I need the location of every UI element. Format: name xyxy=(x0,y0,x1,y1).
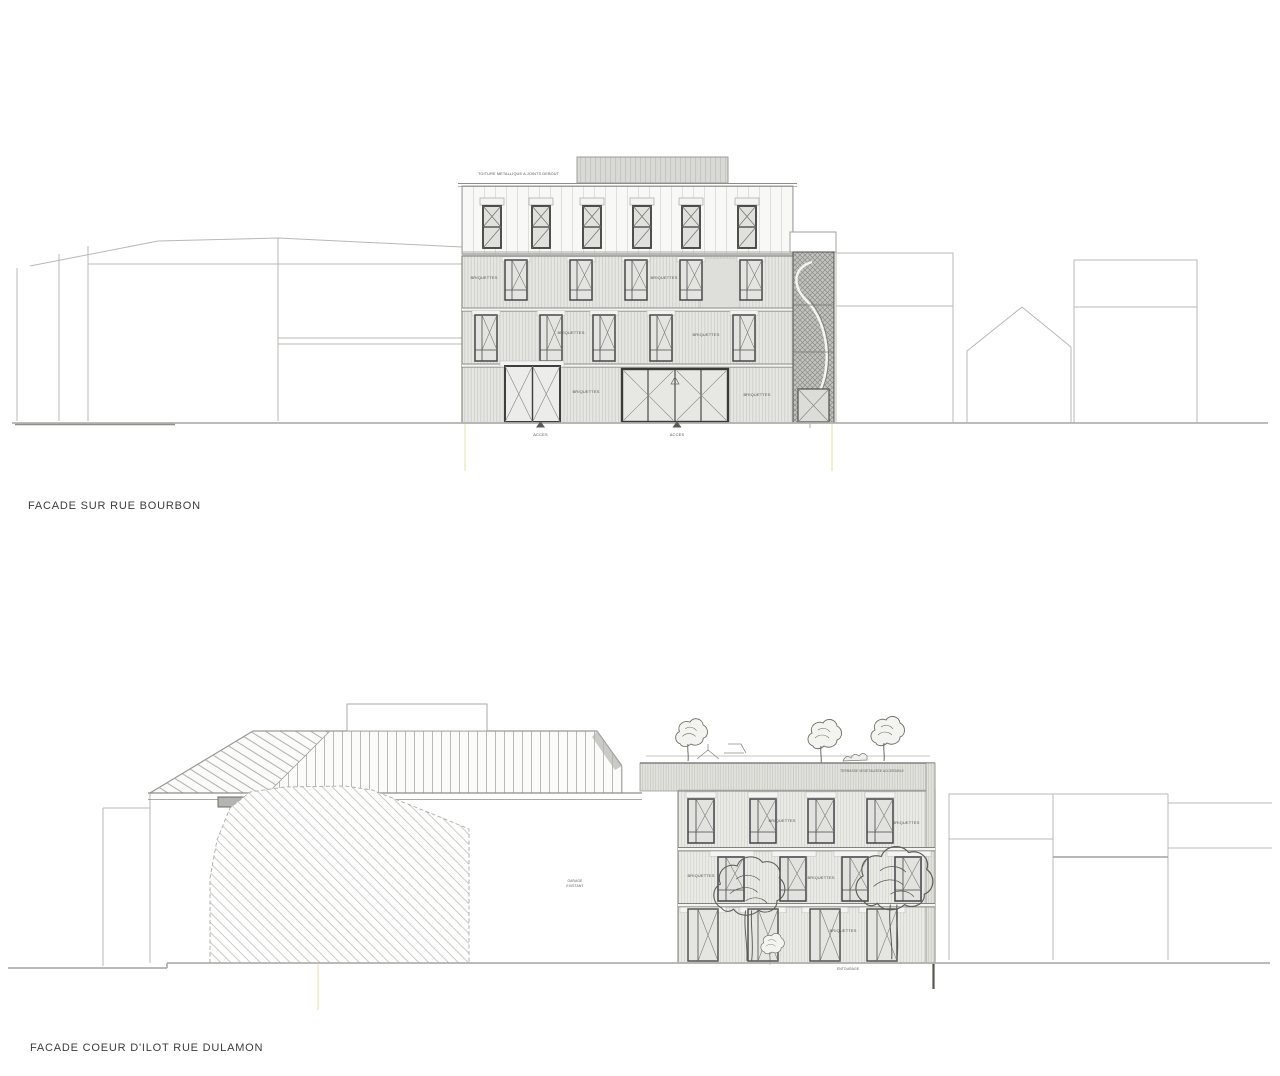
window xyxy=(580,198,604,248)
floor-band xyxy=(678,848,935,851)
material-label: BRIQUETTES xyxy=(768,818,795,823)
window xyxy=(718,857,744,901)
neighbor-buildings-bottom-right xyxy=(949,794,1272,960)
neighbor-roofline xyxy=(30,238,462,266)
window xyxy=(529,198,553,248)
window xyxy=(680,260,702,300)
window xyxy=(630,198,654,248)
tree xyxy=(871,716,905,761)
elevation-drawings: BRIQUETTES BRIQUETTES BRIQUETTES BRIQUET… xyxy=(0,0,1280,1076)
window-lintel xyxy=(865,792,895,798)
window xyxy=(867,909,897,961)
stair-door xyxy=(798,389,829,422)
neighbor-buildings-left xyxy=(15,238,462,424)
material-label: BRIQUETTES xyxy=(687,873,714,878)
material-label: BRIQUETTES xyxy=(892,820,919,825)
architectural-sheet: BRIQUETTES BRIQUETTES BRIQUETTES BRIQUET… xyxy=(0,0,1280,1076)
material-label: BRIQUETTES xyxy=(807,875,834,880)
wall-note-line: EXISTANT xyxy=(566,884,583,888)
left-low-wing xyxy=(103,793,150,966)
tree xyxy=(808,719,842,764)
terrace-shrub-sketch xyxy=(843,754,867,762)
existing-wall-hatched-blob xyxy=(210,786,469,963)
window xyxy=(540,315,562,361)
recessed-panel xyxy=(700,258,740,308)
window-lintel xyxy=(748,792,778,798)
main-building: BRIQUETTES BRIQUETTES BRIQUETTES BRIQUET… xyxy=(458,157,797,423)
property-limit-lines xyxy=(465,424,832,471)
window xyxy=(740,260,762,300)
terrace-parapet-band xyxy=(640,763,935,791)
terrace-note: TERRASSE VEGETALISEE ACCESSIBLE xyxy=(840,769,904,773)
entrance-glazing xyxy=(622,369,728,422)
wall-note: GARAGE EXISTANT xyxy=(566,879,583,888)
window xyxy=(625,260,647,300)
spiral-stair-tower xyxy=(790,232,836,423)
roof-main-section xyxy=(268,731,622,793)
window-lintel xyxy=(686,792,716,798)
facade-coeur-ilot-drawing: GARAGE EXISTANT TERRASSE VEGETALISEE ACC… xyxy=(8,704,1272,1054)
window xyxy=(735,198,759,248)
window xyxy=(842,857,868,901)
window-lintel xyxy=(772,851,816,856)
cornice-shadow xyxy=(462,251,793,256)
window-lintel xyxy=(806,792,836,798)
window xyxy=(810,909,840,961)
window xyxy=(867,799,893,843)
existing-hangar: GARAGE EXISTANT xyxy=(103,704,642,966)
window xyxy=(895,857,921,901)
facade-rue-bourbon-drawing: BRIQUETTES BRIQUETTES BRIQUETTES BRIQUET… xyxy=(12,157,1268,512)
window xyxy=(679,198,703,248)
window xyxy=(688,909,718,961)
material-label: BRIQUETTES xyxy=(572,389,599,394)
gable-house-outline xyxy=(967,307,1071,423)
terrace-planting xyxy=(676,716,905,764)
material-label: BRIQUETTES xyxy=(743,392,770,397)
window xyxy=(505,260,527,300)
terrace-furniture-sketch xyxy=(697,744,746,759)
neighbor-building-outline xyxy=(949,794,1168,960)
window xyxy=(593,315,615,361)
window xyxy=(808,799,834,843)
window-lintel xyxy=(710,851,754,856)
window xyxy=(570,260,592,300)
ground-line xyxy=(8,963,1270,968)
neighbor-buildings-right xyxy=(836,253,1197,423)
window xyxy=(733,315,755,361)
roof-note: TOITURE METALLIQUE A JOINTS DEBOUT xyxy=(478,172,560,176)
material-label: BRIQUETTES xyxy=(829,928,856,933)
window xyxy=(688,799,714,843)
wall-note-line: GARAGE xyxy=(567,879,583,883)
double-door xyxy=(505,366,560,422)
window xyxy=(480,198,504,248)
access-label: ACCES xyxy=(670,432,685,437)
new-building-courtyard: TERRASSE VEGETALISEE ACCESSIBLE xyxy=(640,716,935,989)
material-label: BRIQUETTES xyxy=(557,330,584,335)
drawing-title: FACADE SUR RUE BOURBON xyxy=(28,500,201,512)
material-label: BRIQUETTES xyxy=(470,275,497,280)
drawing-title: FACADE COEUR D'ILOT RUE DULAMON xyxy=(30,1042,263,1054)
window xyxy=(650,315,672,361)
neighbor-building-outline xyxy=(1074,260,1197,423)
penthouse-volume xyxy=(577,157,728,183)
stair-cap xyxy=(790,232,836,252)
neighbor-band-lines xyxy=(278,338,462,344)
material-label: BRIQUETTES xyxy=(692,332,719,337)
ground-note: ENTOURAGE xyxy=(837,967,860,971)
material-label: BRIQUETTES xyxy=(650,275,677,280)
roof-box-volume xyxy=(347,704,487,731)
window xyxy=(475,315,497,361)
access-label: ACCES xyxy=(533,432,548,437)
neighbor-building-outline xyxy=(836,253,953,423)
